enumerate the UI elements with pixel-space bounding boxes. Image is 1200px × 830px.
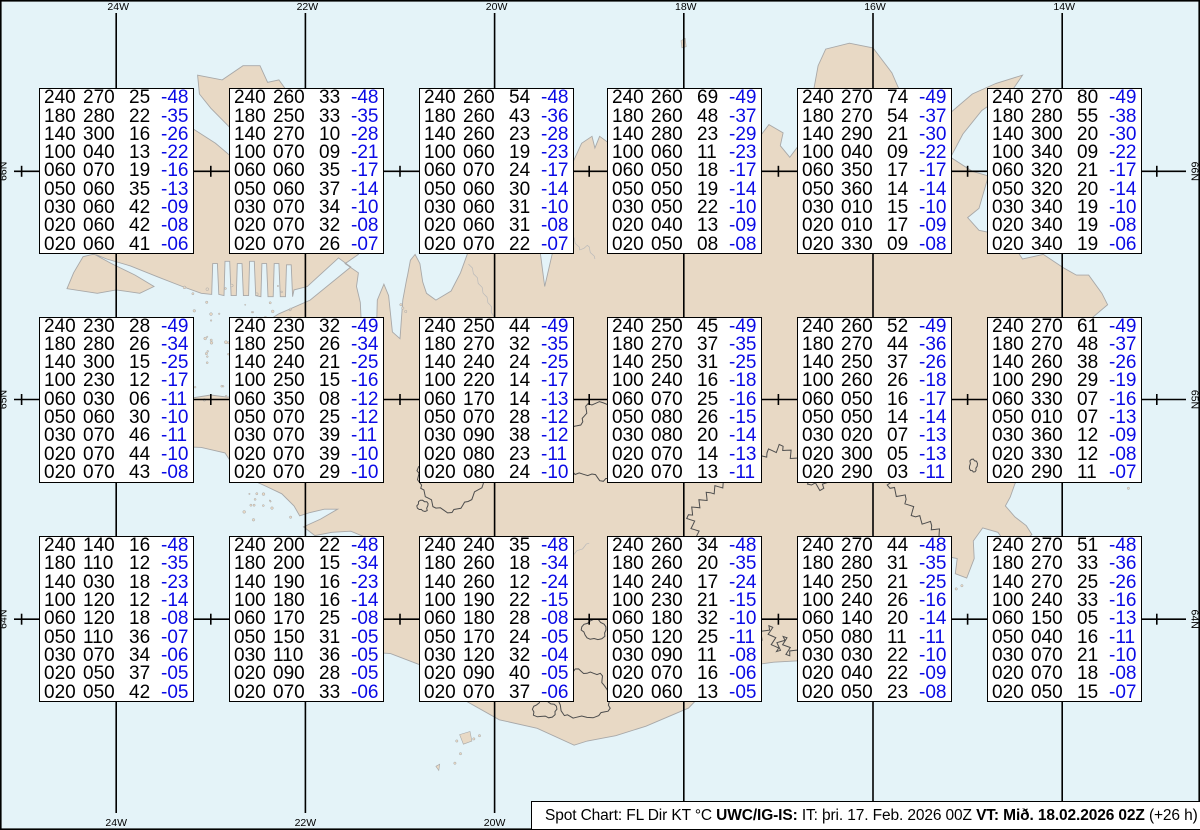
svg-text:65N: 65N	[1189, 390, 1200, 409]
svg-text:66N: 66N	[1189, 162, 1200, 181]
svg-text:64N: 64N	[1189, 610, 1200, 629]
svg-text:20W: 20W	[484, 817, 506, 829]
svg-text:20W: 20W	[486, 1, 508, 13]
svg-text:16W: 16W	[864, 1, 886, 13]
svg-text:14W: 14W	[1053, 1, 1075, 13]
svg-text:22W: 22W	[297, 1, 319, 13]
svg-text:22W: 22W	[295, 817, 317, 829]
svg-text:24W: 24W	[105, 817, 127, 829]
svg-text:24W: 24W	[107, 1, 129, 13]
svg-text:18W: 18W	[675, 1, 697, 13]
